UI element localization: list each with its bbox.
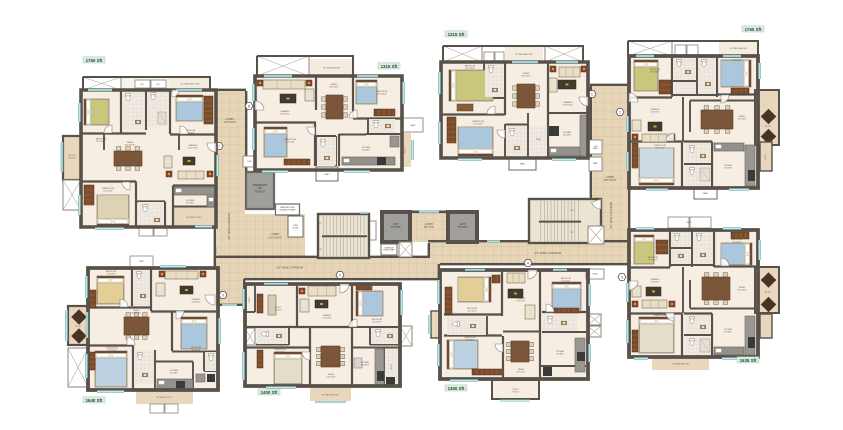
svg-text:6'6" WIDE CORRIDOR: 6'6" WIDE CORRIDOR [277, 266, 304, 270]
svg-text:5: 5 [339, 273, 341, 277]
svg-text:10'0"X8'0": 10'0"X8'0" [724, 331, 733, 333]
svg-text:12'0"X11'0": 12'0"X11'0" [650, 111, 659, 113]
svg-text:3'6" WIDE BALCONY: 3'6" WIDE BALCONY [180, 83, 200, 86]
svg-text:11'0"X10'0": 11'0"X10'0" [191, 349, 200, 351]
svg-text:4'6" WIDE BALCONY: 4'6" WIDE BALCONY [672, 363, 690, 366]
svg-text:11'0"X11'6": 11'0"X11'6" [733, 241, 742, 243]
svg-text:16'0"X10'10": 16'0"X10'10" [131, 312, 142, 314]
svg-text:8'2"X7'0": 8'2"X7'0" [424, 225, 434, 229]
svg-text:UTILITY: UTILITY [405, 146, 407, 153]
svg-text:11'0"X10'0": 11'0"X10'0" [467, 310, 476, 312]
svg-text:10'0"X8'0": 10'0"X8'0" [563, 135, 572, 137]
svg-text:11'0"X11'3": 11'0"X11'3" [562, 280, 571, 282]
svg-text:12'0"X11'6": 12'0"X11'6" [655, 317, 664, 319]
svg-text:3: 3 [621, 275, 623, 279]
svg-text:14'0"X12'0": 14'0"X12'0" [563, 105, 573, 107]
svg-text:11'0"X10'0": 11'0"X10'0" [372, 321, 381, 323]
svg-text:1400 Sft: 1400 Sft [261, 390, 278, 395]
svg-text:11'0"X10'0": 11'0"X10'0" [377, 94, 387, 96]
svg-text:12'0"X11'0": 12'0"X11'0" [188, 148, 198, 150]
svg-text:10'0"X8'0": 10'0"X8'0" [186, 203, 195, 205]
svg-text:12'0"X11'6": 12'0"X11'6" [107, 350, 116, 352]
svg-text:2: 2 [619, 110, 621, 114]
svg-text:11'6"X10'0": 11'6"X10'0" [465, 68, 475, 70]
svg-text:12'0"X11'0": 12'0"X11'0" [191, 301, 200, 303]
svg-text:M.B: M.B [594, 146, 597, 148]
svg-text:SHAFT: SHAFT [703, 192, 709, 195]
svg-text:11'6"X10'0": 11'6"X10'0" [650, 71, 659, 73]
svg-text:12'0"X11'0": 12'0"X11'0" [650, 281, 659, 283]
svg-text:10'0"X12'0": 10'0"X12'0" [603, 178, 616, 182]
svg-text:CHUTE: CHUTE [592, 274, 597, 276]
svg-text:10'0"X16'0": 10'0"X16'0" [223, 120, 236, 124]
svg-text:11'6"X10'6": 11'6"X10'6" [268, 235, 282, 239]
svg-text:4'6" WIDE BALCONY: 4'6" WIDE BALCONY [730, 47, 748, 50]
svg-text:SHAFT: SHAFT [520, 163, 526, 166]
svg-text:1760 Sft: 1760 Sft [745, 27, 762, 32]
svg-text:10'0"X8'0": 10'0"X8'0" [724, 167, 733, 169]
svg-text:11'6"X10'0": 11'6"X10'0" [648, 259, 657, 261]
svg-text:10'0"X12'0": 10'0"X12'0" [516, 371, 526, 373]
svg-text:SIT OUT: SIT OUT [765, 126, 771, 128]
svg-text:1350 Sft: 1350 Sft [448, 386, 465, 391]
svg-text:UTILITY: UTILITY [765, 154, 767, 160]
svg-text:13'6"X12'0": 13'6"X12'0" [322, 317, 332, 319]
svg-text:4: 4 [527, 261, 529, 265]
svg-text:SURISATION SHAFT: SURISATION SHAFT [279, 208, 295, 211]
svg-text:16'0"X10'0": 16'0"X10'0" [737, 118, 747, 120]
svg-text:1: 1 [591, 92, 593, 96]
svg-text:11'6"X10'0": 11'6"X10'0" [106, 273, 115, 275]
svg-text:6'6" WIDE BALCONY: 6'6" WIDE BALCONY [515, 53, 533, 56]
svg-text:10'0"X8'0": 10'0"X8'0" [362, 150, 371, 152]
svg-text:6: 6 [222, 293, 224, 297]
svg-text:13'6"X12'0": 13'6"X12'0" [516, 300, 526, 302]
svg-text:1760 Sft: 1760 Sft [86, 58, 103, 63]
svg-text:4'6" WIDE UTILITY: 4'6" WIDE UTILITY [186, 217, 202, 219]
svg-text:12'0"X11'6": 12'0"X11'6" [655, 147, 664, 149]
svg-text:11'0"X11'6": 11'0"X11'6" [733, 59, 742, 61]
svg-text:CONC: CONC [247, 161, 253, 163]
svg-text:10'0"X8'0": 10'0"X8'0" [556, 353, 565, 355]
svg-text:8'0" WIDE BALCONY: 8'0" WIDE BALCONY [322, 394, 340, 397]
svg-text:SIT OUT: SIT OUT [765, 292, 771, 294]
svg-text:12'0"X11'0": 12'0"X11'0" [473, 124, 483, 126]
svg-text:7'0"X10'0": 7'0"X10'0" [254, 189, 266, 193]
svg-text:6'6" WIDE CORRIDOR: 6'6" WIDE CORRIDOR [227, 213, 231, 240]
svg-text:8: 8 [248, 104, 250, 108]
svg-text:1315 Sft: 1315 Sft [381, 64, 398, 69]
svg-text:12'0"X11'0": 12'0"X11'0" [275, 351, 284, 353]
svg-text:11'6"X10'0": 11'6"X10'0" [96, 141, 106, 143]
svg-text:12'0"X11'0": 12'0"X11'0" [465, 339, 474, 341]
svg-text:12'0"X11'6": 12'0"X11'6" [103, 191, 113, 193]
svg-text:7: 7 [218, 144, 220, 148]
svg-text:4'6" WIDE UTILITY: 4'6" WIDE UTILITY [156, 397, 172, 399]
svg-text:6'6" WIDE CORRIDOR: 6'6" WIDE CORRIDOR [609, 202, 613, 229]
svg-text:6'6" WIDE CORRIDOR: 6'6" WIDE CORRIDOR [535, 251, 562, 255]
svg-text:10'0"X8'0": 10'0"X8'0" [170, 372, 179, 374]
svg-text:1315 Sft: 1315 Sft [448, 32, 465, 37]
svg-text:7'0"X7'0": 7'0"X7'0" [391, 225, 401, 229]
svg-text:10'0"X8'0": 10'0"X8'0" [361, 364, 370, 366]
svg-text:HOSE: HOSE [293, 228, 299, 230]
svg-text:7'0"X7'0": 7'0"X7'0" [457, 225, 467, 229]
svg-text:1635 Sft: 1635 Sft [740, 358, 757, 363]
svg-text:FOYER: FOYER [249, 297, 251, 303]
svg-text:10'0"X12'6": 10'0"X12'6" [329, 87, 339, 89]
svg-text:10'0"X7'6": 10'0"X7'6" [274, 309, 283, 311]
svg-text:UTILITY: UTILITY [391, 364, 393, 370]
svg-text:12'0"X11'0": 12'0"X11'0" [285, 142, 295, 144]
svg-text:1640 Sft: 1640 Sft [86, 398, 103, 403]
svg-text:7'6"X5'0": 7'6"X5'0" [512, 391, 520, 393]
svg-text:10'0"X12'6": 10'0"X12'6" [521, 76, 531, 78]
svg-text:8'2"X4'0": 8'2"X4'0" [68, 158, 76, 160]
svg-text:10'0"X12'0": 10'0"X12'0" [326, 376, 336, 378]
svg-text:16'0"X10'0": 16'0"X10'0" [737, 289, 747, 291]
svg-text:16'0"X10'10": 16'0"X10'10" [125, 145, 136, 147]
svg-text:6'6" WIDE BALCONY: 6'6" WIDE BALCONY [323, 67, 341, 70]
svg-text:14'0"X12'0": 14'0"X12'0" [280, 114, 290, 116]
svg-text:SIT OUT: SIT OUT [75, 326, 81, 328]
